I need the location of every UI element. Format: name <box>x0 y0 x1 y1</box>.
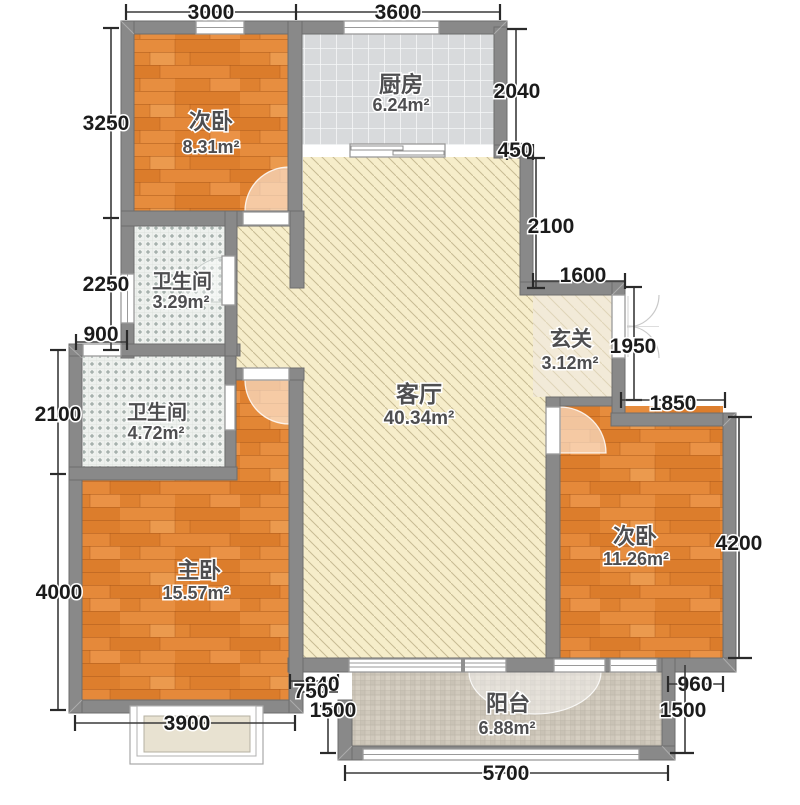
svg-text:次卧: 次卧 <box>613 524 657 549</box>
svg-text:1950: 1950 <box>610 335 657 358</box>
svg-text:1850: 1850 <box>650 392 697 415</box>
svg-text:卫生间: 卫生间 <box>152 270 212 293</box>
svg-text:1500: 1500 <box>310 699 357 722</box>
svg-text:3250: 3250 <box>83 112 130 135</box>
svg-text:厨房: 厨房 <box>379 72 423 97</box>
svg-text:15.57m²: 15.57m² <box>162 583 229 603</box>
svg-text:4.72m²: 4.72m² <box>127 423 184 443</box>
svg-text:3000: 3000 <box>188 1 235 24</box>
svg-text:3.12m²: 3.12m² <box>541 353 598 373</box>
svg-text:2250: 2250 <box>83 273 130 296</box>
svg-text:3.29m²: 3.29m² <box>152 292 209 312</box>
svg-text:1500: 1500 <box>660 699 707 722</box>
svg-text:4000: 4000 <box>36 581 83 604</box>
svg-text:卫生间: 卫生间 <box>127 401 187 424</box>
svg-text:主卧: 主卧 <box>177 558 221 583</box>
svg-text:阳台: 阳台 <box>486 691 530 716</box>
svg-text:900: 900 <box>83 323 118 346</box>
svg-text:2100: 2100 <box>528 215 575 238</box>
svg-text:5700: 5700 <box>483 762 530 785</box>
svg-text:8.31m²: 8.31m² <box>182 137 239 157</box>
svg-text:3900: 3900 <box>164 712 211 735</box>
svg-text:次卧: 次卧 <box>189 109 233 134</box>
svg-text:6.24m²: 6.24m² <box>372 95 429 115</box>
svg-text:2040: 2040 <box>494 80 541 103</box>
svg-text:11.26m²: 11.26m² <box>603 549 669 569</box>
svg-text:3600: 3600 <box>375 1 422 24</box>
svg-text:2100: 2100 <box>35 403 82 426</box>
svg-text:40.34m²: 40.34m² <box>384 408 455 429</box>
svg-text:960: 960 <box>677 673 712 696</box>
svg-text:客厅: 客厅 <box>396 381 442 407</box>
svg-text:4200: 4200 <box>716 532 763 555</box>
svg-text:玄关: 玄关 <box>550 327 592 351</box>
svg-text:1600: 1600 <box>560 264 607 287</box>
svg-text:6.88m²: 6.88m² <box>478 718 535 738</box>
